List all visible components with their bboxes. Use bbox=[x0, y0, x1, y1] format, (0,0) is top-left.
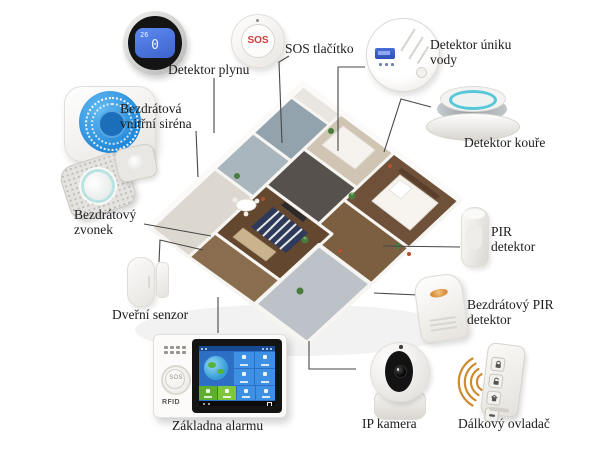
label-alarm-base: Základna alarmu bbox=[172, 418, 263, 433]
lock-icon bbox=[493, 359, 503, 369]
screen-tile bbox=[256, 386, 275, 400]
label-wireless-pir-detector: Bezdrátový PIR detektor bbox=[467, 297, 581, 327]
wireless-pir-device bbox=[413, 272, 470, 344]
disarm-button bbox=[488, 373, 504, 389]
label-pir-detector: PIR detektor bbox=[491, 224, 553, 254]
base-screen-bezel bbox=[192, 339, 282, 413]
water-leak-detector bbox=[366, 18, 440, 92]
ip-camera-device bbox=[360, 342, 438, 420]
home-icon bbox=[267, 402, 273, 407]
wireless-signal-icon bbox=[459, 359, 482, 406]
vent-slot bbox=[417, 46, 429, 64]
screen-tile bbox=[234, 352, 254, 368]
camera-face bbox=[385, 351, 413, 392]
speaker-grille bbox=[164, 346, 186, 349]
smoke-detector-ring bbox=[449, 90, 497, 110]
label-water-leak-detector: Detektor úniku vody bbox=[430, 37, 524, 67]
label-wireless-doorbell: Bezdrátový zvonek bbox=[74, 207, 158, 237]
water-detector-display bbox=[375, 48, 395, 59]
door-sensor-body bbox=[127, 257, 155, 307]
label-remote-control: Dálkový ovladač bbox=[458, 416, 550, 431]
base-sos-text: SOS bbox=[163, 375, 189, 381]
screen-tile bbox=[234, 369, 254, 385]
base-sos-button: SOS bbox=[161, 365, 191, 395]
screen-tile bbox=[237, 386, 255, 400]
arm-button bbox=[490, 356, 506, 372]
doorbell-chime-button bbox=[80, 168, 115, 203]
camera-lens-icon bbox=[394, 365, 407, 378]
label-indoor-siren: Bezdrátová vnitřní siréna bbox=[120, 101, 215, 131]
screen-statusbar bbox=[199, 346, 275, 351]
pir-top-cap bbox=[463, 209, 485, 219]
camera-head bbox=[370, 342, 430, 402]
sos-led-dot bbox=[256, 19, 259, 22]
door-sensor-magnet bbox=[156, 262, 169, 298]
screen-tile bbox=[218, 386, 236, 400]
gas-display-value: 0 bbox=[135, 38, 175, 53]
lens-glint bbox=[397, 368, 400, 371]
screen-tile bbox=[255, 369, 275, 385]
label-door-sensor: Dveřní senzor bbox=[112, 307, 188, 322]
rfid-label: RFID bbox=[162, 399, 180, 406]
base-touchscreen bbox=[199, 346, 275, 406]
screen-tile bbox=[255, 352, 275, 368]
pir-ridge bbox=[431, 326, 457, 331]
pir-ridge bbox=[430, 321, 456, 326]
screen-globe-tile bbox=[204, 356, 228, 380]
water-detector-test-button bbox=[416, 67, 427, 78]
water-detector-leds bbox=[379, 63, 397, 66]
label-ip-camera: IP kamera bbox=[362, 416, 417, 431]
smoke-detector bbox=[424, 84, 522, 142]
gas-detector-display: 26 0 bbox=[135, 28, 175, 58]
screen-tile bbox=[199, 386, 217, 400]
label-sos-button: SOS tlačítko bbox=[285, 41, 354, 56]
doorbell-push-cap bbox=[127, 154, 146, 173]
wireless-pir-led bbox=[429, 288, 448, 299]
sos-button-cap: SOS bbox=[241, 24, 275, 58]
pir-lens bbox=[466, 224, 482, 250]
sos-button-device: SOS bbox=[231, 14, 285, 68]
pir-detector-device bbox=[461, 207, 489, 267]
screen-navbar bbox=[199, 401, 275, 407]
label-gas-detector: Detektor plynu bbox=[168, 62, 249, 77]
unlock-icon bbox=[491, 376, 501, 386]
door-sensor-slot bbox=[148, 276, 150, 288]
pir-ridge bbox=[430, 316, 456, 321]
smoke-detector-top bbox=[440, 86, 506, 112]
sos-button-text: SOS bbox=[242, 35, 274, 46]
product-diagram: 26 0 SOS bbox=[0, 0, 600, 450]
speaker-grille bbox=[164, 351, 186, 354]
home-lock-icon bbox=[489, 393, 499, 403]
home-arm-button bbox=[486, 390, 502, 406]
label-smoke-detector: Detektor kouře bbox=[464, 135, 545, 150]
alarm-base-station: SOS RFID bbox=[153, 334, 287, 418]
remote-buttons bbox=[488, 356, 519, 389]
camera-mic-dot bbox=[399, 345, 403, 349]
